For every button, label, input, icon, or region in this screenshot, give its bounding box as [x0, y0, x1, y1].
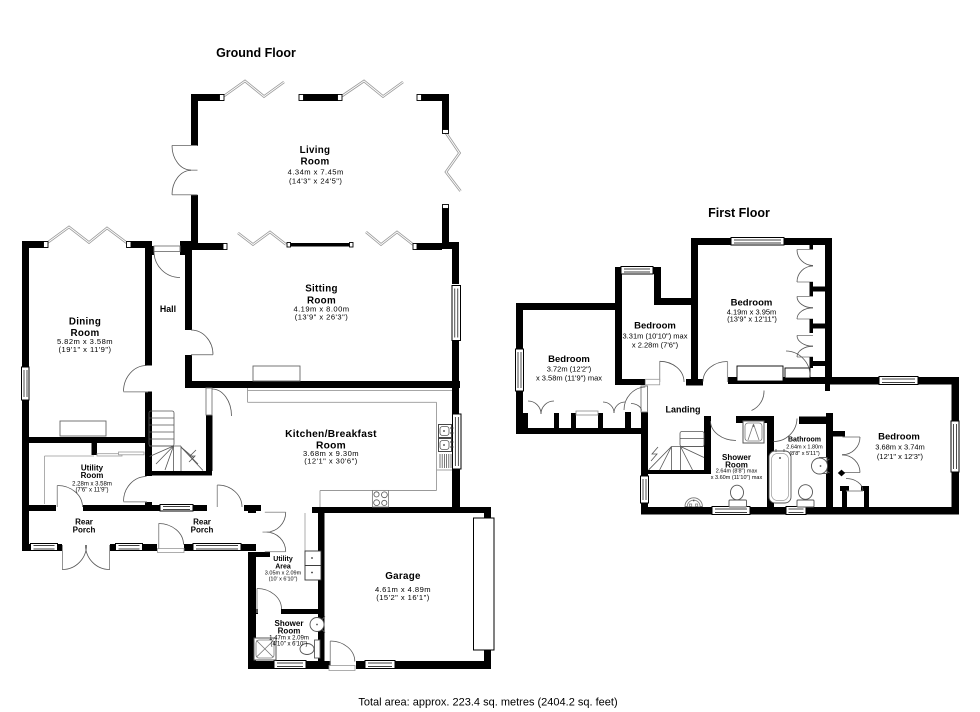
- svg-text:Room: Room: [301, 157, 330, 168]
- svg-text:(12'1" x 30'6"): (12'1" x 30'6"): [304, 457, 357, 466]
- svg-text:2.64m (8'8") max: 2.64m (8'8") max: [716, 469, 758, 475]
- svg-text:4.34m x 7.45m: 4.34m x 7.45m: [288, 167, 344, 176]
- svg-text:Living: Living: [300, 145, 331, 156]
- svg-text:(4'10" x 6'10"): (4'10" x 6'10"): [271, 642, 308, 648]
- svg-text:Kitchen/Breakfast: Kitchen/Breakfast: [285, 429, 377, 440]
- svg-text:(7'6" x 11'9"): (7'6" x 11'9"): [75, 488, 108, 494]
- svg-text:Bathroom: Bathroom: [788, 437, 821, 444]
- svg-text:(14'3" x 24'5"): (14'3" x 24'5"): [289, 177, 342, 186]
- svg-text:x 2.28m (7'6"): x 2.28m (7'6"): [632, 341, 679, 350]
- svg-text:Room: Room: [278, 627, 301, 636]
- svg-text:Porch: Porch: [73, 526, 96, 535]
- svg-text:x 3.58m (11'9") max: x 3.58m (11'9") max: [536, 374, 602, 383]
- svg-text:(13'9" x 26'3"): (13'9" x 26'3"): [295, 312, 348, 321]
- svg-text:Ground Floor: Ground Floor: [216, 46, 296, 60]
- svg-text:Dining: Dining: [69, 316, 101, 327]
- svg-text:Porch: Porch: [191, 526, 214, 535]
- svg-text:(13'9" x 12'11"): (13'9" x 12'11"): [727, 315, 777, 324]
- svg-text:(12'1" x 12'3"): (12'1" x 12'3"): [877, 452, 924, 461]
- svg-text:3.31m (10'10") max: 3.31m (10'10") max: [623, 332, 688, 341]
- svg-text:Room: Room: [81, 471, 104, 480]
- svg-text:3.72m (12'2"): 3.72m (12'2"): [547, 365, 592, 374]
- svg-text:Bedroom: Bedroom: [878, 432, 920, 443]
- svg-text:(19'1" x 11'9"): (19'1" x 11'9"): [59, 345, 112, 354]
- svg-text:(15'2" x 16'1"): (15'2" x 16'1"): [376, 593, 429, 602]
- svg-text:(8'8" x 5'11"): (8'8" x 5'11"): [789, 451, 820, 457]
- svg-text:Total area: approx. 223.4 sq.: Total area: approx. 223.4 sq. metres (24…: [358, 697, 617, 709]
- svg-text:Hall: Hall: [160, 304, 176, 314]
- svg-text:Sitting: Sitting: [305, 283, 338, 294]
- svg-text:Bedroom: Bedroom: [548, 354, 590, 365]
- svg-text:Garage: Garage: [385, 571, 421, 582]
- svg-text:x 3.60m (11'10") max: x 3.60m (11'10") max: [711, 475, 763, 481]
- svg-text:3.68m x 3.74m: 3.68m x 3.74m: [875, 443, 925, 452]
- svg-text:Utility: Utility: [273, 556, 293, 563]
- svg-text:First Floor: First Floor: [708, 206, 770, 220]
- svg-text:Landing: Landing: [666, 405, 701, 415]
- svg-text:2.64m x 1.80m: 2.64m x 1.80m: [786, 445, 823, 451]
- svg-text:Area: Area: [275, 564, 291, 571]
- svg-text:(10' x 6'10"): (10' x 6'10"): [269, 577, 298, 583]
- svg-text:Bedroom: Bedroom: [634, 321, 676, 332]
